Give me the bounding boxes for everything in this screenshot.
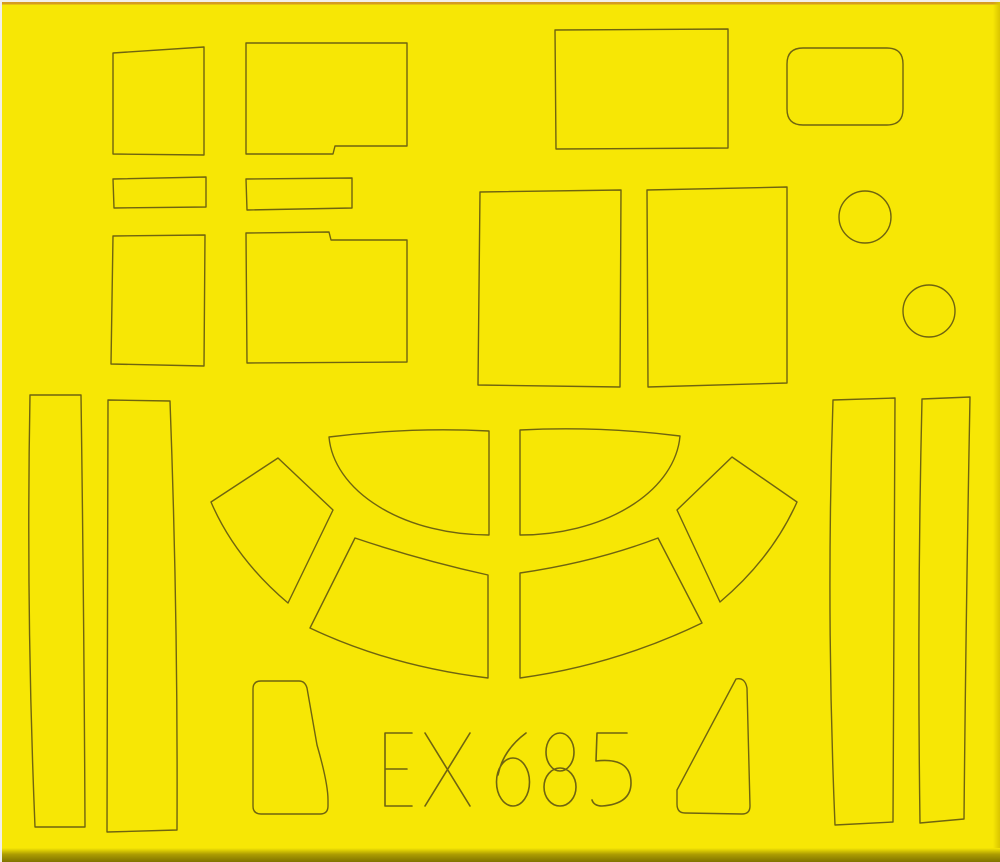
mask-canopy-outer-right: [520, 538, 702, 678]
mask-canopy-inner-left: [329, 430, 489, 535]
mask-strip-long-right-1: [830, 398, 895, 825]
mask-canopy-corner-left: [211, 458, 333, 603]
photo-background: EX685: [0, 0, 1000, 862]
mask-strip-long-left-2: [107, 400, 177, 832]
product-code-stroke-E: [385, 733, 412, 806]
mask-rect-center-left: [478, 190, 621, 387]
product-code-stroke-6: [497, 733, 530, 806]
mask-quad-top-left: [113, 47, 204, 155]
mask-rect-notched-bottom: [246, 232, 407, 363]
product-code-stroke-5: [592, 733, 631, 806]
mask-strip-long-right-2: [919, 397, 970, 823]
mask-rect-center-right: [647, 187, 787, 387]
mask-cut-lines: [0, 0, 1000, 862]
mask-canopy-corner-right: [677, 457, 797, 602]
mask-strip-long-left-1: [29, 395, 85, 827]
product-code-stroke-X: [425, 733, 470, 806]
mask-strip-small-right: [246, 178, 352, 210]
mask-trapezoid-bottom-left: [253, 681, 328, 814]
mask-strip-small-left: [113, 177, 206, 208]
mask-rounded-rect: [787, 48, 903, 125]
mask-canopy-outer-left: [310, 538, 488, 678]
mask-rect-top-center: [555, 29, 728, 149]
mask-circle-lower: [903, 285, 955, 337]
mask-canopy-inner-right: [520, 429, 680, 535]
mask-rect-mid-left: [111, 235, 205, 366]
product-code-stroke-8: [544, 733, 576, 806]
mask-circle-upper: [839, 191, 891, 243]
mask-rect-notched-top: [246, 43, 407, 154]
mask-trapezoid-bottom-right: [677, 679, 750, 814]
